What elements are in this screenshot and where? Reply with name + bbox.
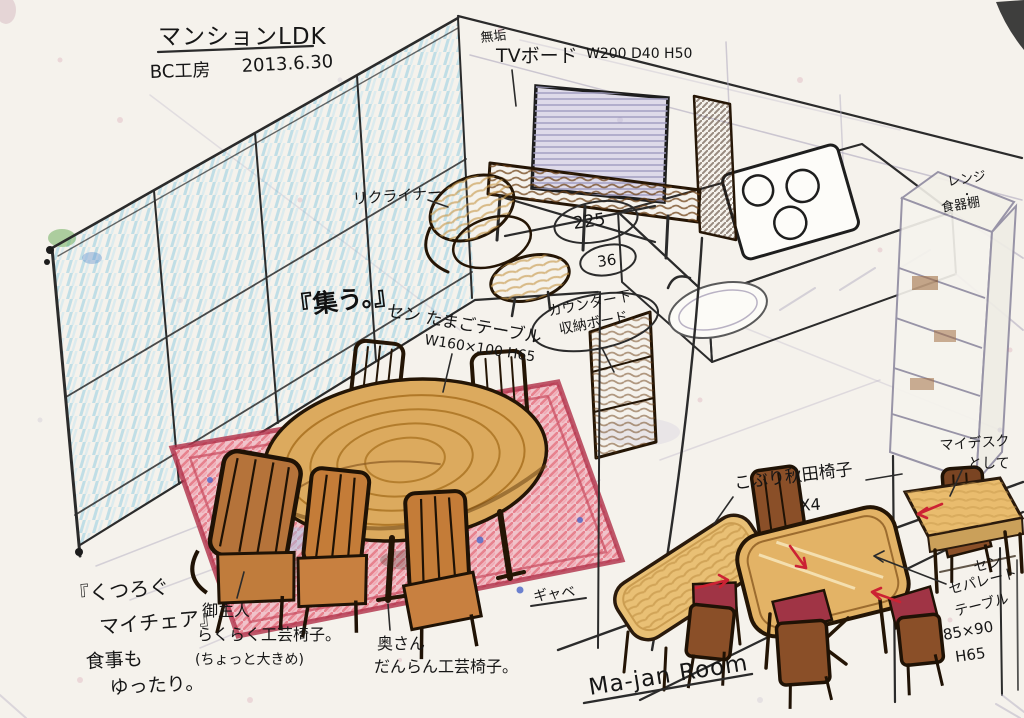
faucet [668,276,690,288]
dim-36: 36 [596,250,617,270]
sketch-page: マンションLDK BC工房 2013.6.30 無垢 TVボード W200 D4… [0,0,1024,718]
wife-label-1: 奥さん [377,634,425,653]
corner-smudge [996,0,1024,50]
relax-note-2: ゆったり。 [109,672,205,699]
dim-225: 225 [572,210,607,234]
ottoman [486,247,574,309]
tv-board-label: TVボード [495,45,578,67]
tv-area [488,86,736,258]
tv-material-label: 無垢 [480,28,507,46]
husband-label-2: らくらく工芸椅子。 [197,625,341,644]
wife-label-2: だんらん工芸椅子。 [374,657,518,676]
cabinet-label-1: レンジ [946,169,987,190]
husband-label-1: 御主人 [202,601,250,620]
date-label: 2013.6.30 [241,51,334,77]
relax-quote-1: 『くつろぐ [68,574,170,607]
separate-table-5: H65 [954,644,987,666]
my-desk-label-2: として [968,456,1010,472]
rug-label: ギャベ [533,584,577,605]
ldk-sketch: マンションLDK BC工房 2013.6.30 無垢 TVボード W200 D4… [0,0,1024,718]
majan-chairs-count: X4 [799,495,821,515]
husband-label-3: (ちょっと大きめ) [195,652,304,668]
majan-chair-right [888,586,947,696]
majan-room-label: Ma-jan Room [587,650,750,701]
title-label: マンションLDK [158,24,327,50]
studio-label: BC工房 [149,60,210,83]
relax-note-1: 食事も [85,648,143,673]
majan-chair-bottom [772,590,838,710]
stove [721,143,861,261]
sink [663,273,773,348]
tv-size-label: W200 D40 H50 [586,46,692,62]
